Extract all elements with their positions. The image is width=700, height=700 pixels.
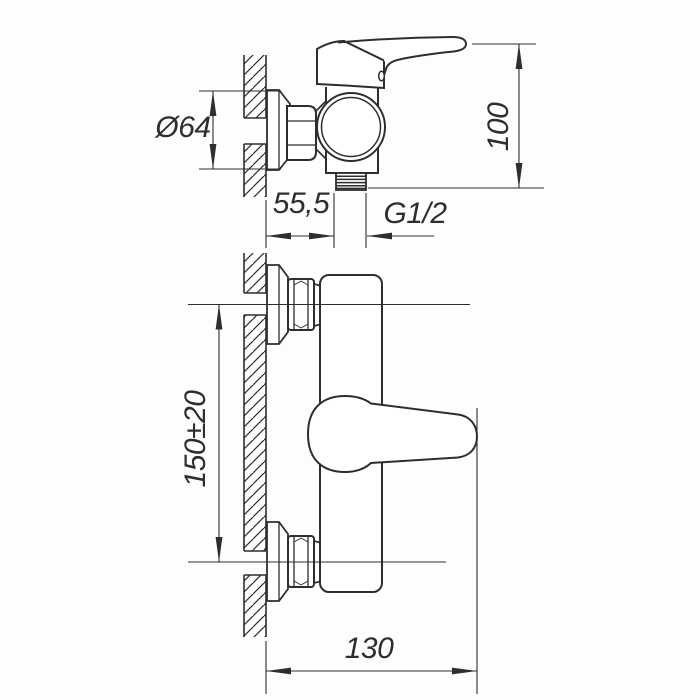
dim-label-overall-width: 130 <box>329 633 409 665</box>
technical-drawing-canvas: Ø64 100 55,5 G1/2 150±20 130 <box>0 0 700 700</box>
wall-section-side <box>244 55 266 197</box>
lever-handle-front <box>308 396 477 472</box>
dim-label-thread-size: G1/2 <box>375 198 455 230</box>
dim-label-wall-offset: 55,5 <box>261 188 341 220</box>
dim-label-connection-spacing: 150±20 <box>180 364 212 514</box>
cartridge-circle <box>317 93 385 161</box>
dim-label-flange-diameter: Ø64 <box>145 112 221 144</box>
drawing-linework <box>0 0 700 700</box>
front-view <box>188 253 477 694</box>
wall-section-front <box>244 253 266 637</box>
hex-nut-side <box>287 106 316 160</box>
dim-150-20 <box>216 305 223 563</box>
thread-leader-g12 <box>367 233 434 240</box>
dim-label-height: 100 <box>483 77 515 177</box>
dim-100 <box>368 44 544 188</box>
